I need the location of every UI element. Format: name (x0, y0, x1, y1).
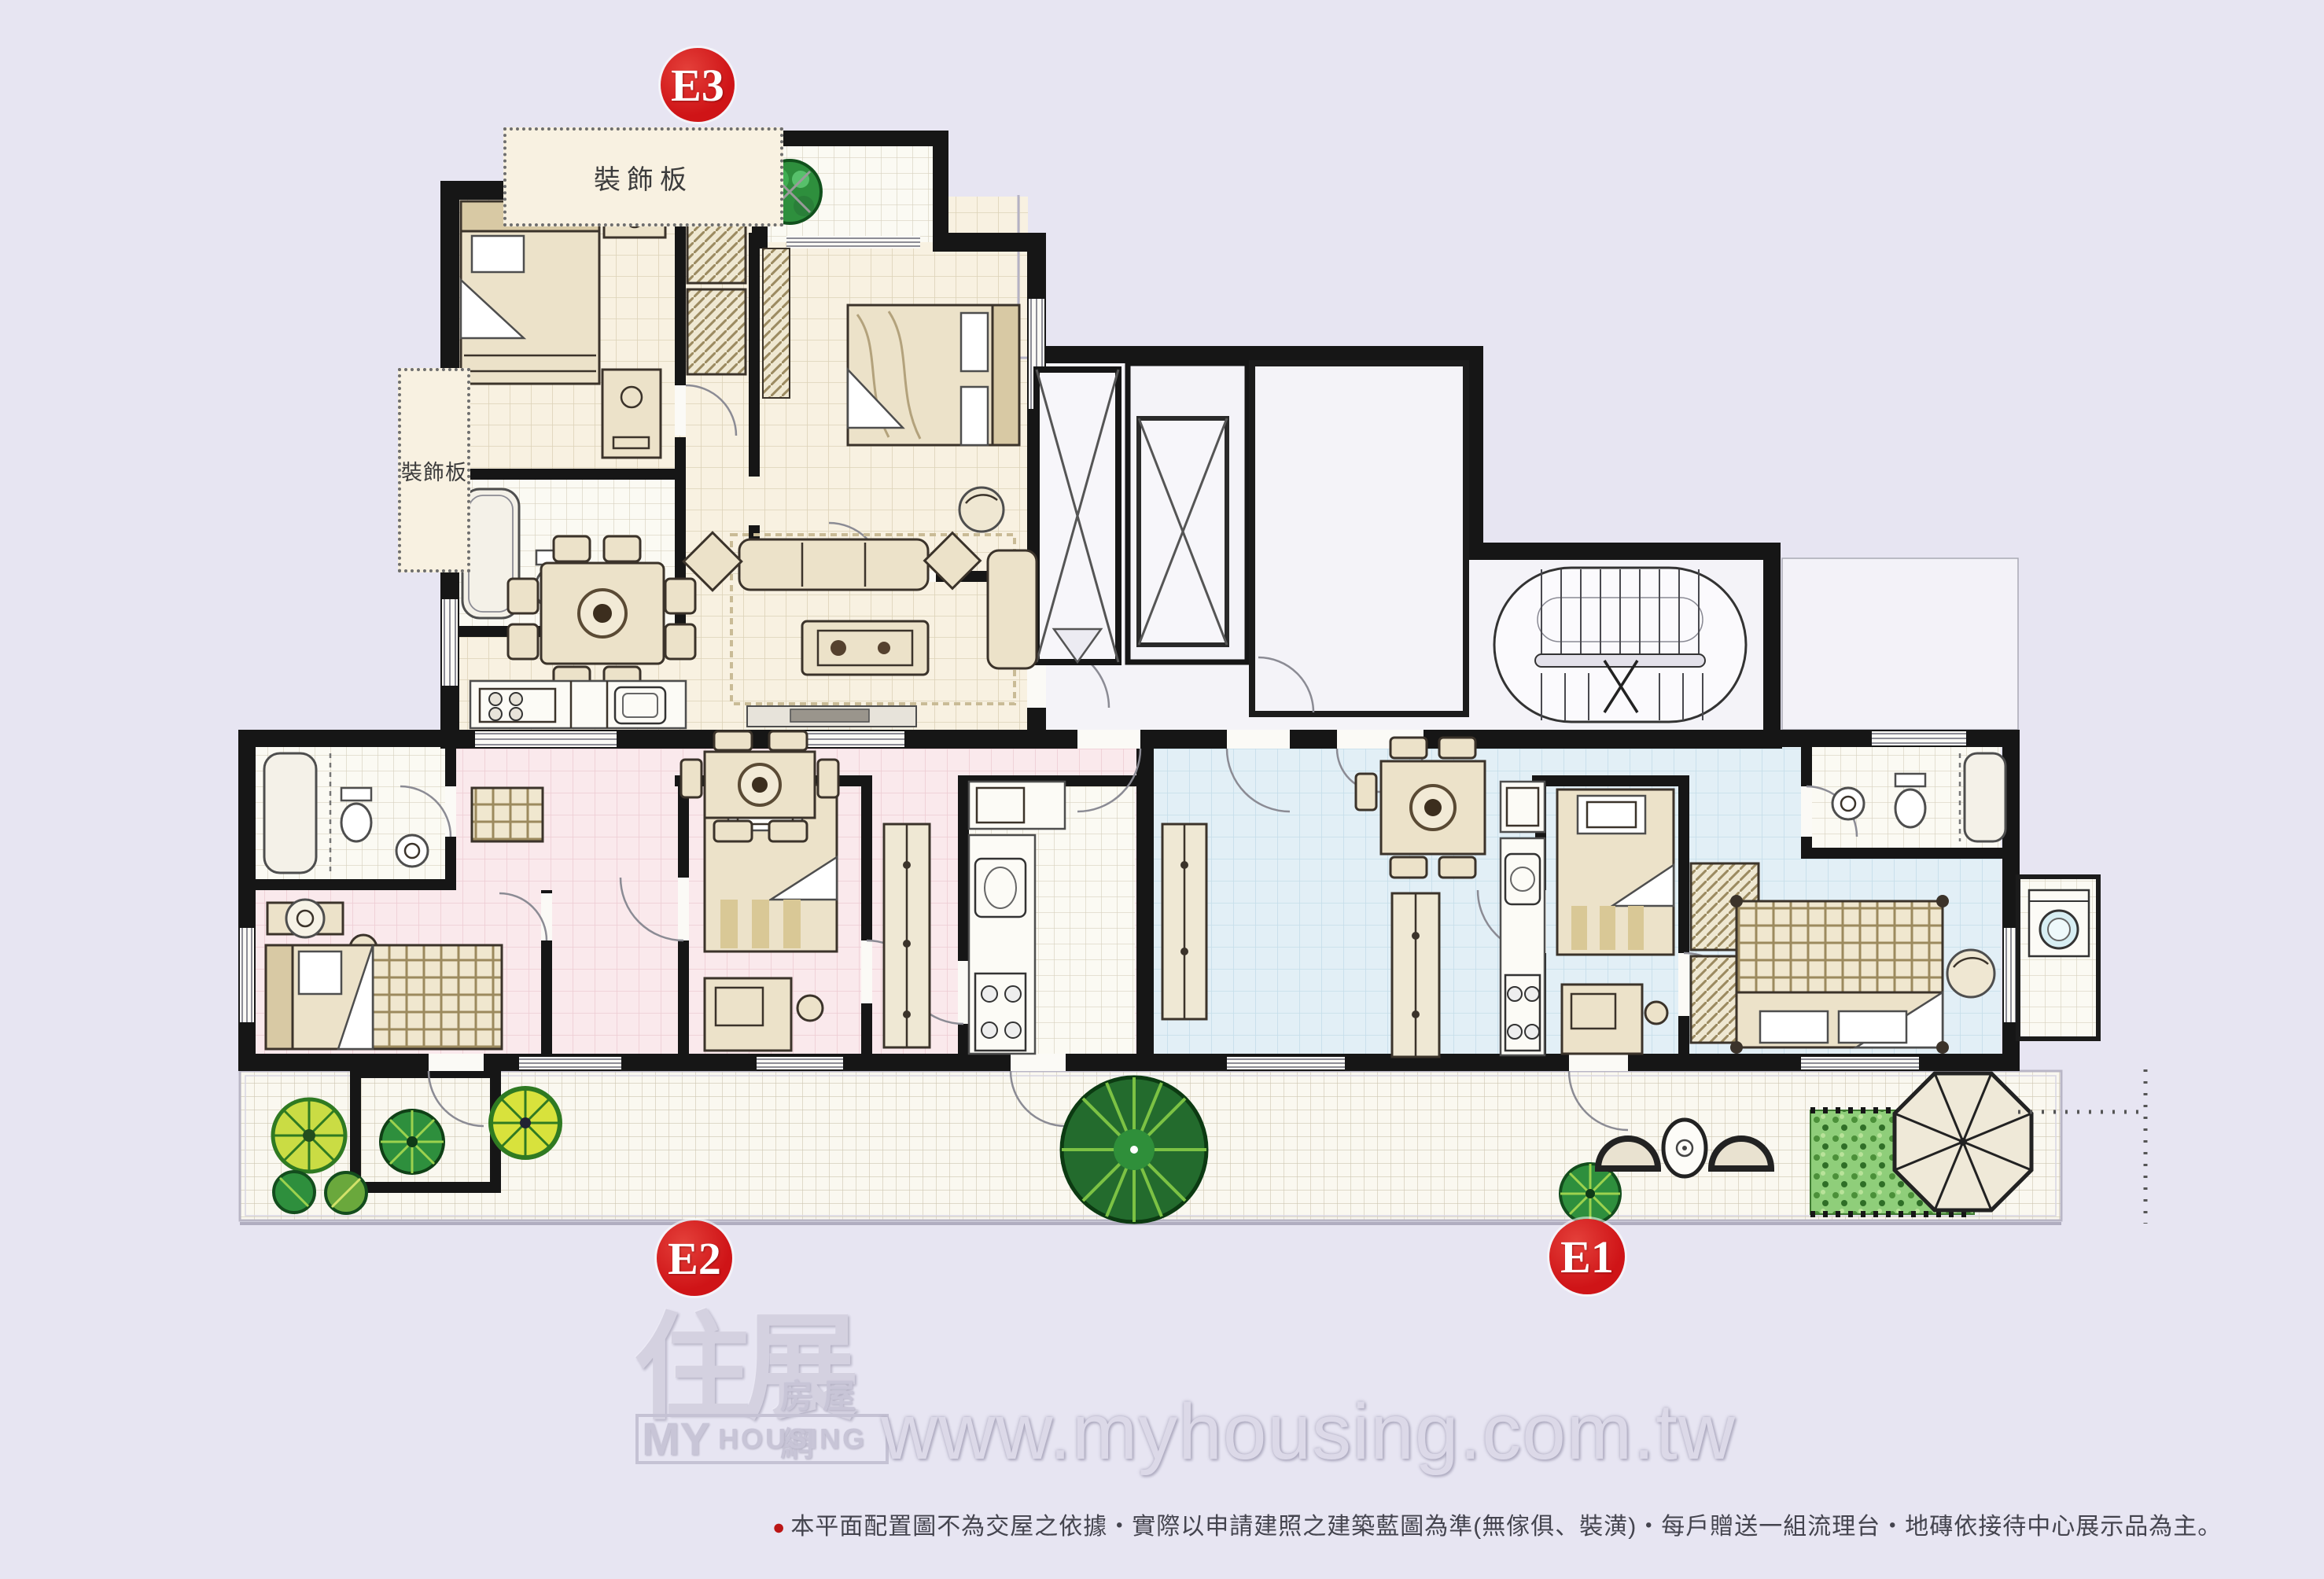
machine-room (1252, 363, 1466, 714)
disclaimer: ●本平面配置圖不為交屋之依據・實際以申請建照之建築藍圖為準(無傢俱、裝潢)・每戶… (772, 1507, 2222, 1541)
unit-badge-e2: E2 (657, 1220, 732, 1296)
disclaimer-bullet-icon: ● (772, 1515, 786, 1539)
e1-tall-cabinet-icon (1392, 893, 1439, 1057)
e1-master-bed-icon (1730, 895, 1949, 1054)
floor-plan-canvas (0, 0, 2324, 1579)
flower-tree-icon (491, 1088, 560, 1158)
e1-kitchen (1501, 782, 1545, 1055)
unit-badge-e3: E3 (661, 48, 735, 122)
staircase-icon (1494, 568, 1746, 722)
pine-tree-icon (1062, 1077, 1206, 1222)
elevator-shaft-icon (1037, 370, 1118, 662)
floor-plan-page: 裝飾板 裝飾板 E3 E2 E1 住展 房屋網 MY HOUSING www.m… (0, 0, 2324, 1579)
unit-badge-e3-label: E3 (671, 59, 724, 112)
coffee-table-icon (802, 621, 928, 675)
e2-cabinet-icon (884, 824, 930, 1047)
armchair-icon (959, 488, 1004, 532)
disclaimer-text: 本平面配置圖不為交屋之依據・實際以申請建照之建築藍圖為準(無傢俱、裝潢)・每戶贈… (790, 1514, 2222, 1540)
unit-badge-e2-label: E2 (668, 1232, 721, 1285)
e2-bed-icon (266, 945, 502, 1049)
logo-en-box: MY HOUSING (635, 1414, 889, 1464)
logo-en-my: MY (642, 1413, 710, 1466)
decor-panel-left-label: 裝飾板 (401, 455, 467, 486)
e1-cabinet-icon (1162, 824, 1206, 1019)
decor-panel-top: 裝飾板 (503, 127, 783, 226)
watermark-url: www.myhousing.com.tw (881, 1387, 1736, 1478)
unit-badge-e1-label: E1 (1560, 1231, 1614, 1283)
e2-sink-icon (396, 835, 428, 867)
elevator-shaft-icon-2 (1128, 363, 1247, 662)
e1-armchair-icon (1947, 950, 1994, 997)
logo-en-housing: HOUSING (718, 1423, 867, 1456)
e2-side-table-icon (472, 788, 543, 841)
e2-toilet-icon (341, 788, 371, 841)
e1-single-bed-icon (1557, 789, 1674, 955)
e1-terrace-tree-icon (1560, 1164, 1620, 1224)
dresser-icon (602, 370, 661, 458)
myhousing-logo: 住展 房屋網 MY HOUSING (634, 1326, 901, 1475)
umbrella-icon (1895, 1073, 2031, 1210)
kitchen-counter (470, 681, 686, 728)
decor-panel-top-label: 裝飾板 (594, 158, 693, 197)
unit-badge-e1: E1 (1549, 1219, 1625, 1294)
planter-tree-icon (381, 1110, 444, 1173)
tv-console-icon (747, 706, 916, 727)
decor-panel-left: 裝飾板 (398, 368, 470, 572)
bed-icon (461, 201, 599, 384)
